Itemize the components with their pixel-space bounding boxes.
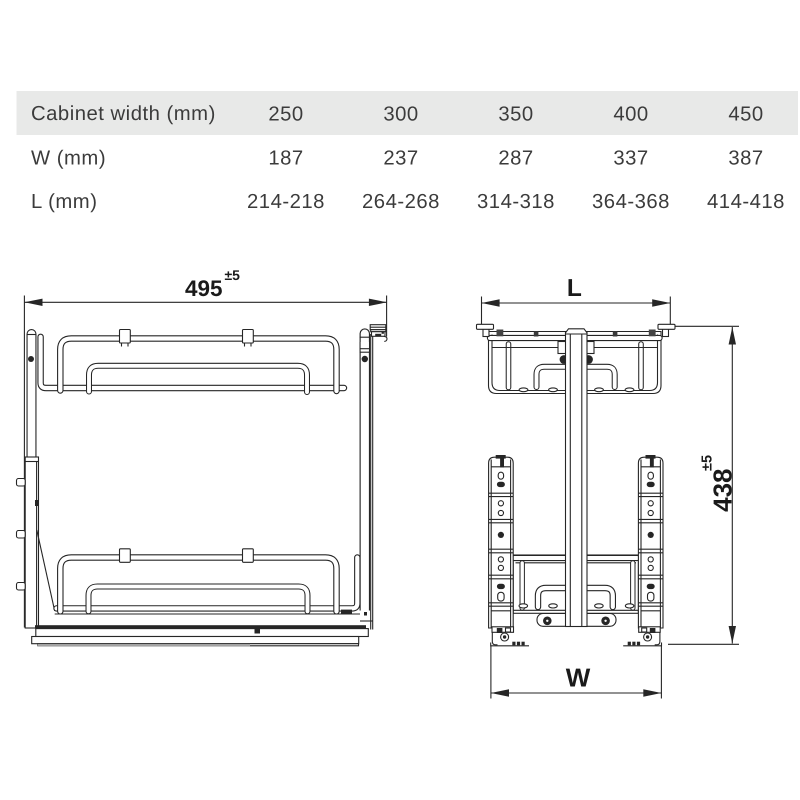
svg-text:287: 287: [498, 148, 533, 170]
svg-text:187: 187: [268, 148, 303, 170]
svg-text:250: 250: [268, 104, 303, 126]
svg-text:450: 450: [728, 104, 763, 126]
svg-text:±5: ±5: [225, 267, 241, 283]
svg-text:350: 350: [498, 104, 533, 126]
svg-text:495: 495: [185, 276, 223, 301]
svg-text:214-218: 214-218: [247, 191, 325, 213]
svg-text:264-268: 264-268: [362, 191, 440, 213]
svg-text:400: 400: [613, 104, 648, 126]
svg-text:W: W: [566, 663, 591, 693]
svg-text:387: 387: [728, 148, 763, 170]
svg-text:414-418: 414-418: [707, 191, 785, 213]
svg-text:L: L: [567, 275, 582, 302]
svg-text:364-368: 364-368: [592, 191, 670, 213]
svg-text:237: 237: [383, 148, 418, 170]
svg-text:438: 438: [708, 469, 738, 512]
svg-text:Cabinet width (mm): Cabinet width (mm): [31, 103, 216, 125]
svg-text:W (mm): W (mm): [31, 148, 106, 170]
svg-text:337: 337: [613, 148, 648, 170]
svg-text:±5: ±5: [700, 455, 716, 471]
svg-text:L (mm): L (mm): [31, 191, 97, 213]
svg-text:300: 300: [383, 104, 418, 126]
svg-text:314-318: 314-318: [477, 191, 555, 213]
